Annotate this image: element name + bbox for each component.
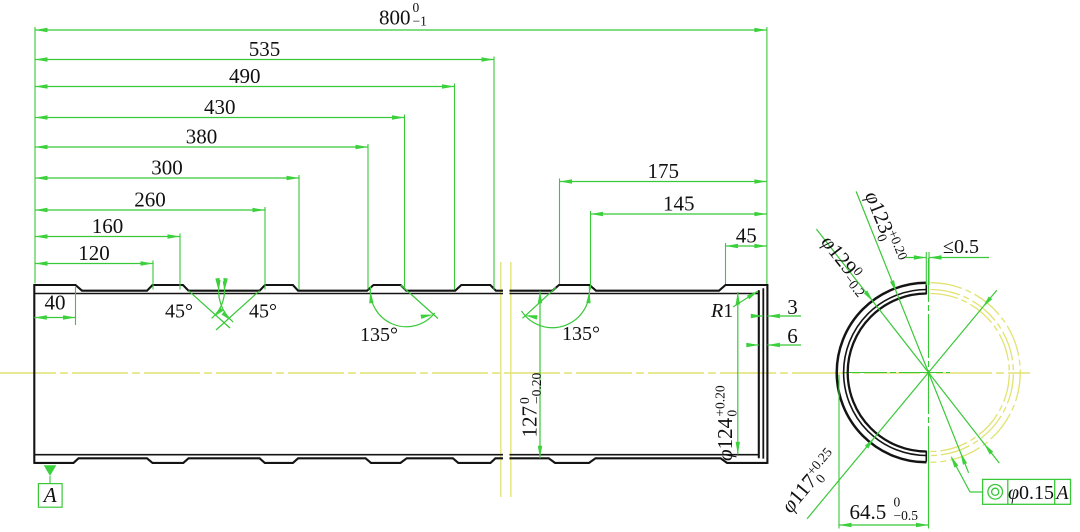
svg-text:45: 45 xyxy=(736,224,757,248)
svg-text:64.5: 64.5 xyxy=(850,500,887,524)
svg-text:135°: 135° xyxy=(562,323,600,345)
svg-text:R1: R1 xyxy=(710,300,733,322)
svg-text:φ0.15: φ0.15 xyxy=(1008,482,1054,504)
svg-text:≤0.5: ≤0.5 xyxy=(943,236,979,258)
svg-text:175: 175 xyxy=(647,159,679,183)
svg-text:135°: 135° xyxy=(360,324,398,346)
svg-text:127: 127 xyxy=(518,406,542,438)
svg-text:A: A xyxy=(42,483,57,507)
svg-text:430: 430 xyxy=(204,95,236,119)
svg-text:120: 120 xyxy=(78,241,110,265)
svg-text:6: 6 xyxy=(787,324,798,348)
svg-text:φ124: φ124 xyxy=(713,417,737,461)
svg-text:−1: −1 xyxy=(413,14,427,29)
svg-text:3: 3 xyxy=(787,295,798,319)
svg-text:A: A xyxy=(1054,482,1069,504)
svg-text:380: 380 xyxy=(186,125,218,149)
svg-text:−0.5: −0.5 xyxy=(894,508,919,523)
svg-text:160: 160 xyxy=(92,214,124,238)
svg-text:490: 490 xyxy=(229,64,261,88)
svg-text:800: 800 xyxy=(379,6,411,30)
svg-text:260: 260 xyxy=(134,188,166,212)
svg-text:300: 300 xyxy=(151,156,183,180)
svg-text:0: 0 xyxy=(725,410,740,417)
svg-text:535: 535 xyxy=(249,37,281,61)
svg-text:145: 145 xyxy=(663,192,695,216)
svg-text:40: 40 xyxy=(45,291,66,315)
svg-text:−0.20: −0.20 xyxy=(529,373,544,404)
svg-text:45°: 45° xyxy=(165,301,193,323)
svg-text:45°: 45° xyxy=(249,301,277,323)
